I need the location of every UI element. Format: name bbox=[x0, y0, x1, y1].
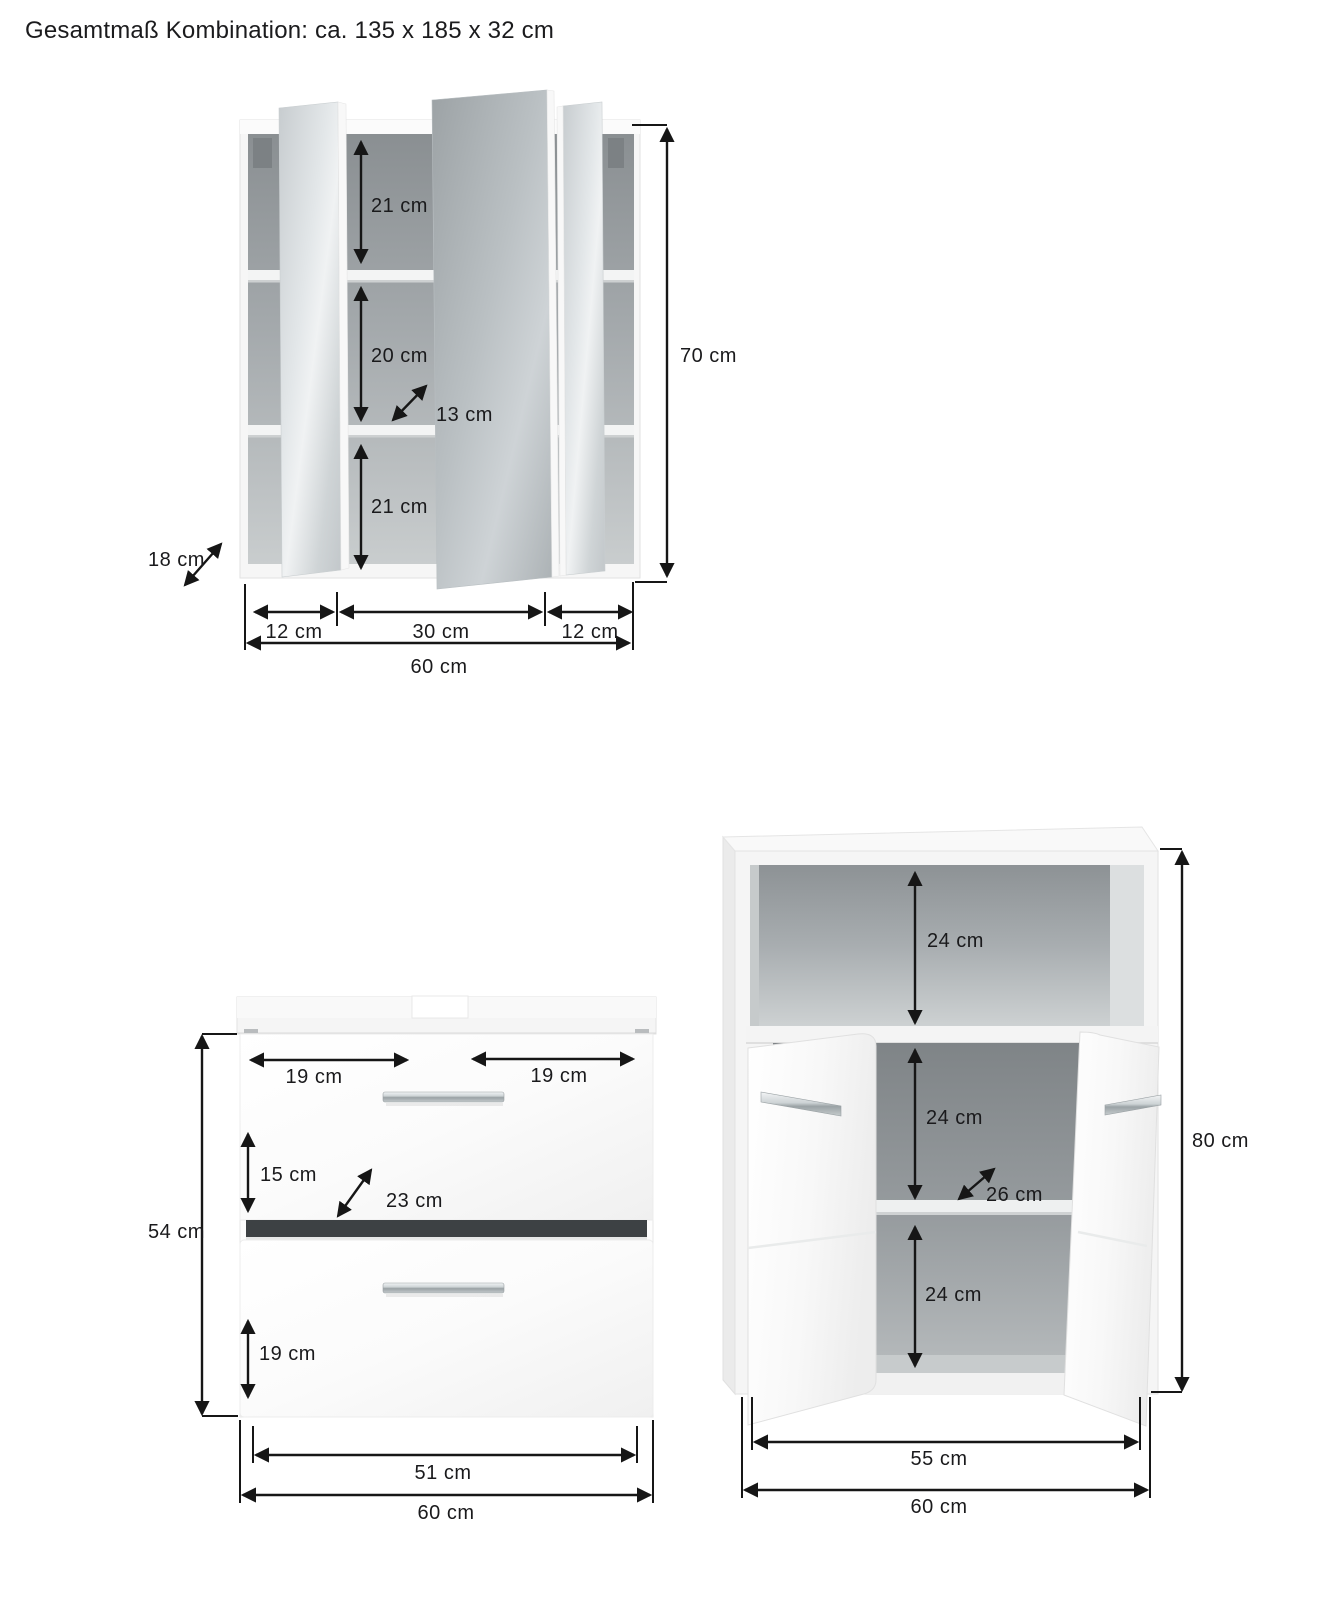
upper-drawer-front bbox=[240, 1034, 653, 1220]
siphon-cutout bbox=[412, 996, 468, 1018]
niche-right-wall bbox=[1110, 865, 1144, 1026]
dim-label-inner-top: 21 cm bbox=[371, 195, 428, 217]
dim-label-inner-width: 55 cm bbox=[911, 1448, 968, 1470]
mirror-cabinet-figure: 21 cm 20 cm 13 cm 21 cm 70 cm 18 cm 12 c… bbox=[140, 90, 740, 690]
dim-label-depth: 18 cm bbox=[148, 549, 205, 571]
dim-label-inner-depth: 13 cm bbox=[436, 404, 493, 426]
niche-left-wall bbox=[750, 865, 759, 1026]
dim-label-bottom-height: 24 cm bbox=[925, 1284, 982, 1306]
drawer-gap bbox=[246, 1220, 647, 1237]
page-title: Gesamtmaß Kombination: ca. 135 x 185 x 3… bbox=[25, 16, 554, 46]
door-left bbox=[748, 1034, 876, 1425]
side-cabinet-figure: 24 cm 24 cm 26 cm 24 cm 80 cm 55 cm 60 c… bbox=[690, 780, 1290, 1570]
dim-label-drawer-width: 51 cm bbox=[415, 1462, 472, 1484]
dim-label-top-right-width: 19 cm bbox=[531, 1065, 588, 1087]
dim-label-height: 80 cm bbox=[1192, 1130, 1249, 1152]
dim-label-lower-drawer-height: 19 cm bbox=[259, 1343, 316, 1365]
dim-label-width-total: 60 cm bbox=[411, 656, 468, 678]
mirror-door-right bbox=[563, 102, 605, 575]
dim-label-width-left: 12 cm bbox=[266, 621, 323, 643]
dim-label-middle-height: 24 cm bbox=[926, 1107, 983, 1129]
upper-drawer-handle bbox=[383, 1092, 504, 1102]
dim-label-inner-depth: 23 cm bbox=[386, 1190, 443, 1212]
dim-label-height: 70 cm bbox=[680, 345, 737, 367]
dim-label-inner-bottom: 21 cm bbox=[371, 496, 428, 518]
washbasin-cabinet-figure: 19 cm 19 cm 15 cm 23 cm 19 cm 54 cm 51 c… bbox=[140, 950, 700, 1570]
dim-label-width-center: 30 cm bbox=[413, 621, 470, 643]
dim-label-width-right: 12 cm bbox=[562, 621, 619, 643]
dim-label-upper-drawer-height: 15 cm bbox=[260, 1164, 317, 1186]
side-panel-left bbox=[723, 837, 735, 1394]
dim-label-inner-middle: 20 cm bbox=[371, 345, 428, 367]
dim-label-top-left-width: 19 cm bbox=[286, 1066, 343, 1088]
dim-label-inner-depth: 26 cm bbox=[986, 1184, 1043, 1206]
hinge-mark-left bbox=[244, 1029, 258, 1033]
mirror-door-left bbox=[279, 102, 341, 577]
dim-label-height: 54 cm bbox=[148, 1221, 205, 1243]
mirror-cabinet-drawing bbox=[240, 90, 640, 589]
mirror-door-center bbox=[432, 90, 552, 589]
wall-bracket-right bbox=[608, 138, 624, 168]
door-right bbox=[1064, 1032, 1159, 1426]
wall-bracket-left bbox=[253, 138, 272, 168]
middle-shelf bbox=[840, 1200, 1102, 1214]
lower-drawer-front bbox=[240, 1240, 653, 1417]
lower-drawer-handle bbox=[383, 1283, 504, 1293]
top-board bbox=[723, 827, 1158, 851]
dim-label-width-total: 60 cm bbox=[911, 1496, 968, 1518]
dim-label-width-total: 60 cm bbox=[418, 1502, 475, 1524]
dim-label-niche-height: 24 cm bbox=[927, 930, 984, 952]
middle-shelf-edge bbox=[840, 1212, 1102, 1215]
hinge-mark-right bbox=[635, 1029, 649, 1033]
